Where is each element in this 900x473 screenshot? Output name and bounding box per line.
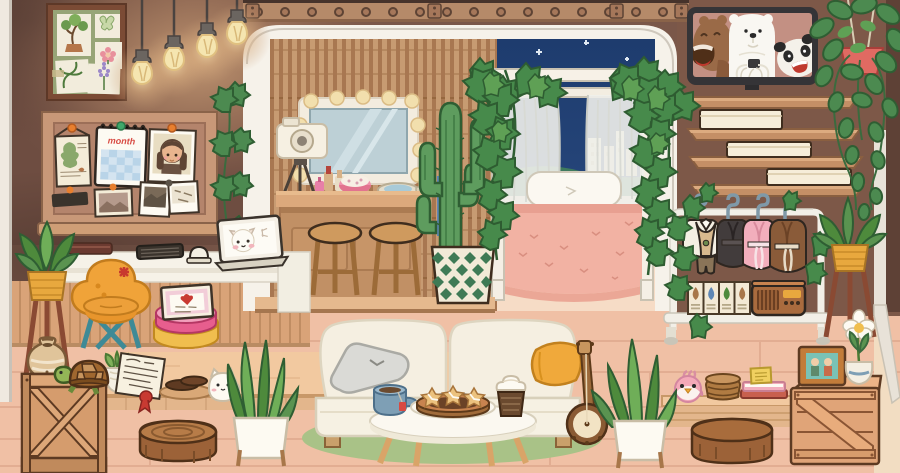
svg-text:month: month [108,136,136,147]
